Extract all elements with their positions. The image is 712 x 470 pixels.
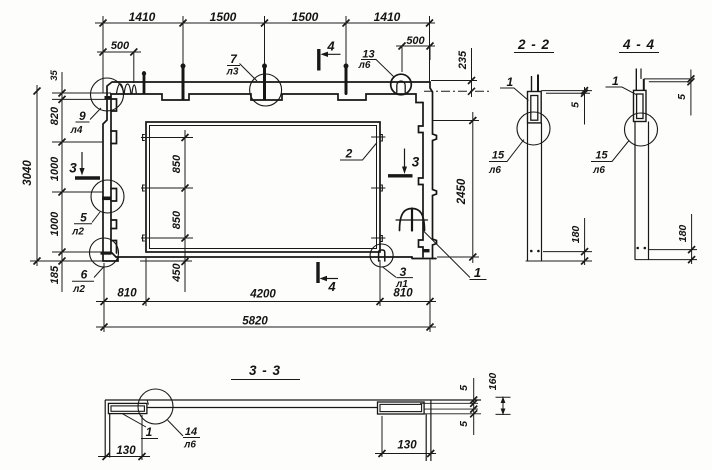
svg-text:л6: л6: [488, 165, 501, 176]
svg-text:180: 180: [677, 225, 689, 243]
svg-text:4: 4: [326, 39, 335, 54]
svg-text:820: 820: [49, 106, 61, 125]
svg-text:160: 160: [487, 373, 499, 391]
svg-text:3: 3: [400, 265, 407, 279]
svg-text:450: 450: [171, 262, 183, 282]
svg-text:5: 5: [458, 421, 470, 427]
svg-text:235: 235: [457, 50, 469, 70]
svg-text:л4: л4: [70, 125, 83, 136]
svg-text:15: 15: [595, 150, 608, 162]
svg-text:130: 130: [116, 445, 136, 457]
svg-text:9: 9: [79, 109, 86, 123]
svg-text:3: 3: [412, 155, 420, 170]
svg-text:1: 1: [146, 425, 153, 439]
svg-text:15: 15: [492, 150, 505, 162]
svg-text:5: 5: [676, 94, 688, 100]
svg-text:5: 5: [458, 385, 470, 391]
svg-text:5: 5: [570, 102, 582, 108]
svg-text:500: 500: [406, 35, 425, 47]
svg-text:5: 5: [80, 211, 87, 225]
svg-text:14: 14: [185, 426, 197, 438]
svg-text:2: 2: [345, 147, 353, 161]
svg-text:500: 500: [111, 40, 130, 52]
svg-text:13: 13: [362, 49, 374, 61]
svg-text:185: 185: [49, 265, 61, 284]
svg-text:л2: л2: [72, 284, 85, 295]
svg-text:1: 1: [612, 74, 619, 88]
svg-text:л6: л6: [592, 165, 605, 176]
svg-text:1500: 1500: [292, 10, 319, 24]
svg-text:1500: 1500: [210, 10, 237, 24]
svg-text:1410: 1410: [374, 10, 401, 24]
svg-text:4 - 4: 4 - 4: [622, 37, 655, 52]
svg-text:130: 130: [397, 440, 417, 452]
svg-text:5820: 5820: [242, 316, 268, 328]
svg-text:850: 850: [171, 154, 183, 173]
svg-text:35: 35: [49, 70, 60, 81]
svg-text:3: 3: [69, 161, 77, 176]
svg-text:л6: л6: [183, 440, 196, 451]
svg-text:6: 6: [81, 268, 88, 282]
svg-text:1000: 1000: [49, 211, 61, 236]
svg-text:1000: 1000: [49, 156, 61, 181]
svg-text:4200: 4200: [249, 289, 276, 301]
svg-text:180: 180: [570, 226, 582, 244]
svg-text:2 - 2: 2 - 2: [517, 37, 550, 52]
svg-text:2450: 2450: [456, 178, 468, 205]
svg-text:1410: 1410: [129, 10, 156, 24]
svg-text:л6: л6: [358, 60, 371, 71]
svg-text:7: 7: [230, 52, 238, 66]
svg-text:л2: л2: [71, 227, 84, 238]
svg-text:1: 1: [507, 75, 514, 89]
svg-text:4: 4: [327, 279, 336, 294]
svg-text:850: 850: [171, 210, 183, 229]
svg-text:810: 810: [117, 288, 137, 300]
svg-text:л1: л1: [395, 279, 408, 290]
svg-text:л3: л3: [226, 67, 239, 78]
svg-text:1: 1: [474, 265, 481, 280]
svg-text:3040: 3040: [22, 160, 34, 186]
svg-text:3 - 3: 3 - 3: [249, 363, 281, 378]
